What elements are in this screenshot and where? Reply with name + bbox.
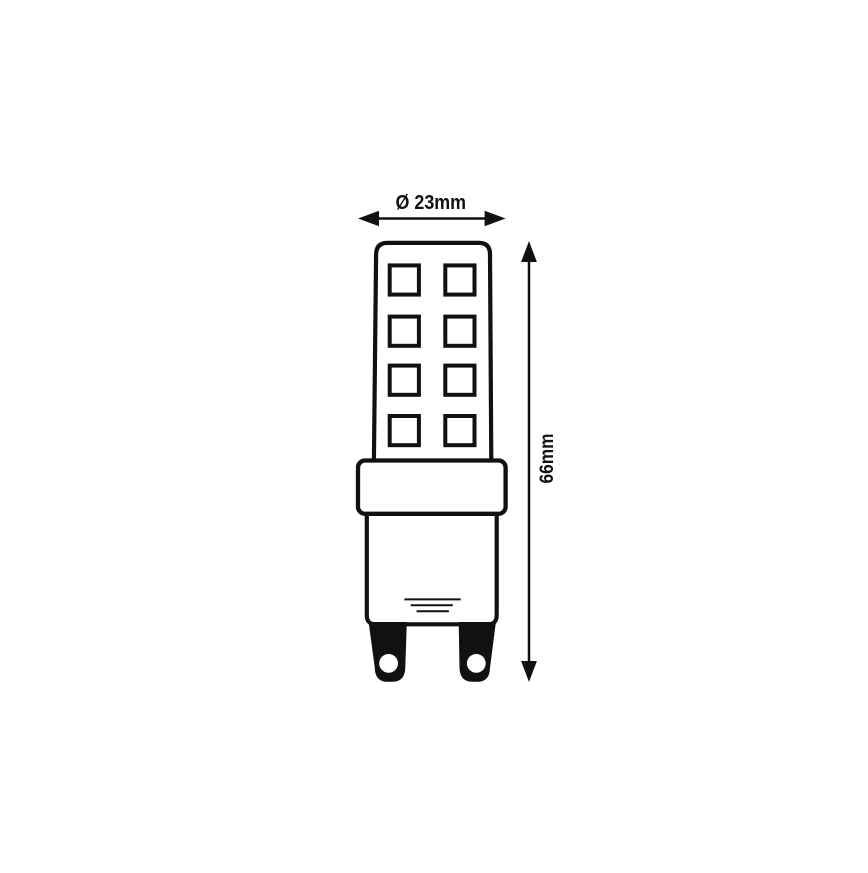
svg-text:Ø 23mm: Ø 23mm bbox=[396, 192, 467, 214]
svg-text:66mm: 66mm bbox=[537, 434, 558, 484]
